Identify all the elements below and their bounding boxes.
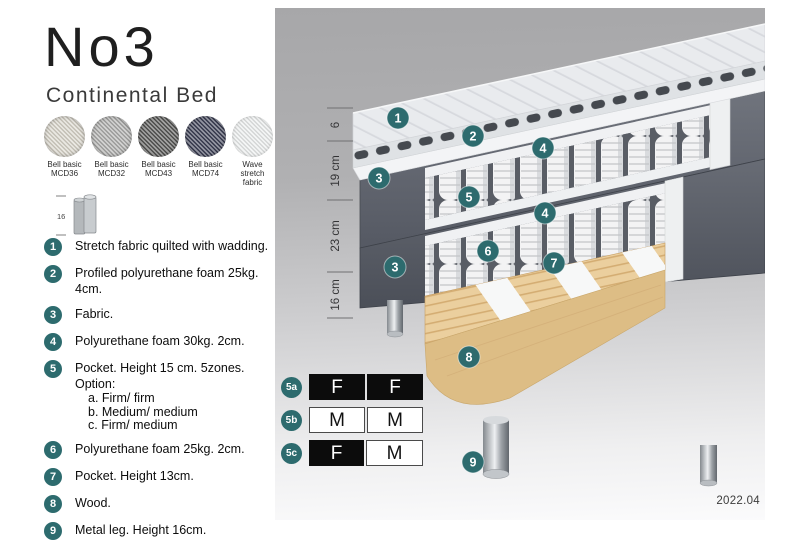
- firmness-cell: F: [309, 440, 364, 466]
- swatch-name: Bell basic: [47, 160, 81, 169]
- spec-number-badge: 3: [44, 306, 62, 324]
- spec-text: Polyurethane foam 30kg. 2cm.: [75, 333, 245, 351]
- spec-text: Profiled polyurethane foam 25kg. 4cm.: [75, 265, 278, 297]
- fabric-swatch-circle[interactable]: [232, 116, 273, 157]
- spec-item-6: 6 Polyurethane foam 25kg. 2cm.: [44, 441, 278, 459]
- spec-number-badge: 7: [44, 468, 62, 486]
- firmness-row-5a: 5a F F: [281, 374, 423, 400]
- svg-text:5: 5: [466, 191, 473, 205]
- version-date: 2022.04: [716, 495, 760, 507]
- firmness-badge: 5b: [281, 410, 302, 431]
- spec-text: Wood.: [75, 495, 111, 513]
- spec-item-7: 7 Pocket. Height 13cm.: [44, 468, 278, 486]
- spec-number-badge: 2: [44, 265, 62, 283]
- svg-text:9: 9: [470, 456, 477, 470]
- callout-badge-6: 6: [477, 240, 499, 262]
- fabric-swatch[interactable]: Wavestretch fabric: [232, 116, 273, 187]
- firmness-badge: 5a: [281, 377, 302, 398]
- callout-badge-2: 2: [462, 125, 484, 147]
- swatch-code: MCD43: [145, 169, 172, 178]
- fabric-swatch-circle[interactable]: [138, 116, 179, 157]
- firmness-cell: F: [309, 374, 365, 400]
- spec-number-badge: 6: [44, 441, 62, 459]
- firmness-cell: M: [367, 407, 423, 433]
- callout-badge-1: 1: [387, 107, 409, 129]
- spec-text: Pocket. Height 15 cm. 5zones. Option:: [75, 361, 245, 391]
- svg-text:4: 4: [540, 142, 547, 156]
- fabric-swatch-row: Bell basicMCD36 Bell basicMCD32 Bell bas…: [44, 116, 273, 187]
- swatch-name: Wave: [242, 160, 262, 169]
- metal-leg-right: [700, 445, 717, 483]
- spec-number-badge: 4: [44, 333, 62, 351]
- firmness-cell: F: [367, 374, 423, 400]
- firmness-row-5b: 5b M M: [281, 407, 423, 433]
- swatch-code: MCD36: [51, 169, 78, 178]
- spec-text: Metal leg. Height 16cm.: [75, 522, 206, 540]
- dimension-label-upper-box: 19 cm: [330, 155, 342, 186]
- svg-text:3: 3: [392, 261, 399, 275]
- svg-text:3: 3: [376, 172, 383, 186]
- fabric-swatch[interactable]: Bell basicMCD74: [185, 116, 226, 187]
- callout-badge-7: 7: [543, 252, 565, 274]
- spec-text: Stretch fabric quilted with wadding.: [75, 238, 268, 256]
- spec-item-2: 2 Profiled polyurethane foam 25kg. 4cm.: [44, 265, 278, 297]
- lower-frame-column: [665, 177, 683, 282]
- callout-badge-5: 5: [458, 186, 480, 208]
- callout-badge-4-upper: 4: [532, 137, 554, 159]
- fabric-swatch-circle[interactable]: [44, 116, 85, 157]
- spec-item-9: 9 Metal leg. Height 16cm.: [44, 522, 278, 540]
- spec-text: Pocket. Height 13cm.: [75, 468, 194, 486]
- leg-height-label: 16: [57, 212, 65, 221]
- svg-text:6: 6: [485, 245, 492, 259]
- firmness-row-5c: 5c F M: [281, 440, 423, 466]
- fabric-swatch[interactable]: Bell basicMCD36: [44, 116, 85, 187]
- swatch-name: Bell basic: [94, 160, 128, 169]
- page-subtitle: Continental Bed: [46, 84, 218, 108]
- svg-text:7: 7: [551, 257, 558, 271]
- dimension-labels: 6 19 cm 23 cm 16 cm: [330, 122, 342, 311]
- firmness-cell: M: [366, 440, 423, 466]
- callout-badge-3-lower: 3: [384, 256, 406, 278]
- firmness-badge: 5c: [281, 443, 302, 464]
- spec-number-badge: 9: [44, 522, 62, 540]
- upper-frame-column: [710, 99, 730, 170]
- swatch-name: Bell basic: [141, 160, 175, 169]
- fabric-swatch[interactable]: Bell basicMCD32: [91, 116, 132, 187]
- swatch-name: Bell basic: [188, 160, 222, 169]
- pocket-option-b: b. Medium/ medium: [88, 406, 278, 420]
- pocket-options: a. Firm/ firm b. Medium/ medium c. Firm/…: [88, 392, 278, 433]
- svg-text:8: 8: [466, 351, 473, 365]
- leg-dimension-icon: 16: [50, 188, 114, 242]
- spec-item-5: 5 Pocket. Height 15 cm. 5zones. Option: …: [44, 360, 278, 433]
- swatch-code: MCD74: [192, 169, 219, 178]
- svg-text:2: 2: [470, 130, 477, 144]
- illustration-panel: 6 19 cm 23 cm 16 cm 1 2 3 4 5 4 3 6 7 8 …: [275, 8, 765, 520]
- dimension-label-top-mattress: 6: [330, 122, 342, 128]
- metal-leg-back: [387, 300, 403, 334]
- firmness-table: 5a F F 5b M M 5c F M: [281, 374, 423, 473]
- swatch-code: MCD32: [98, 169, 125, 178]
- callout-badge-9: 9: [462, 451, 484, 473]
- callout-badge-3-upper: 3: [368, 167, 390, 189]
- callout-badge-4-lower: 4: [534, 202, 556, 224]
- spec-number-badge: 8: [44, 495, 62, 513]
- dimension-label-leg: 16 cm: [330, 279, 342, 310]
- metal-leg-front: [483, 420, 509, 474]
- spec-list: 1 Stretch fabric quilted with wadding. 2…: [44, 238, 278, 549]
- spec-number-badge: 5: [44, 360, 62, 378]
- spec-text: Fabric.: [75, 306, 113, 324]
- pocket-option-c: c. Firm/ medium: [88, 419, 278, 433]
- spec-item-4: 4 Polyurethane foam 30kg. 2cm.: [44, 333, 278, 351]
- callout-badge-8: 8: [458, 346, 480, 368]
- spec-item-1: 1 Stretch fabric quilted with wadding.: [44, 238, 278, 256]
- fabric-swatch-circle[interactable]: [91, 116, 132, 157]
- fabric-swatch-circle[interactable]: [185, 116, 226, 157]
- spec-number-badge: 1: [44, 238, 62, 256]
- dimension-label-lower-box: 23 cm: [330, 220, 342, 251]
- spec-item-3: 3 Fabric.: [44, 306, 278, 324]
- fabric-swatch[interactable]: Bell basicMCD43: [138, 116, 179, 187]
- pocket-option-a: a. Firm/ firm: [88, 392, 278, 406]
- swatch-code: stretch fabric: [240, 169, 264, 187]
- svg-text:1: 1: [395, 112, 402, 126]
- page-title: No3: [44, 14, 159, 79]
- spec-text: Polyurethane foam 25kg. 2cm.: [75, 441, 245, 459]
- svg-text:4: 4: [542, 207, 549, 221]
- spec-item-8: 8 Wood.: [44, 495, 278, 513]
- firmness-cell: M: [309, 407, 365, 433]
